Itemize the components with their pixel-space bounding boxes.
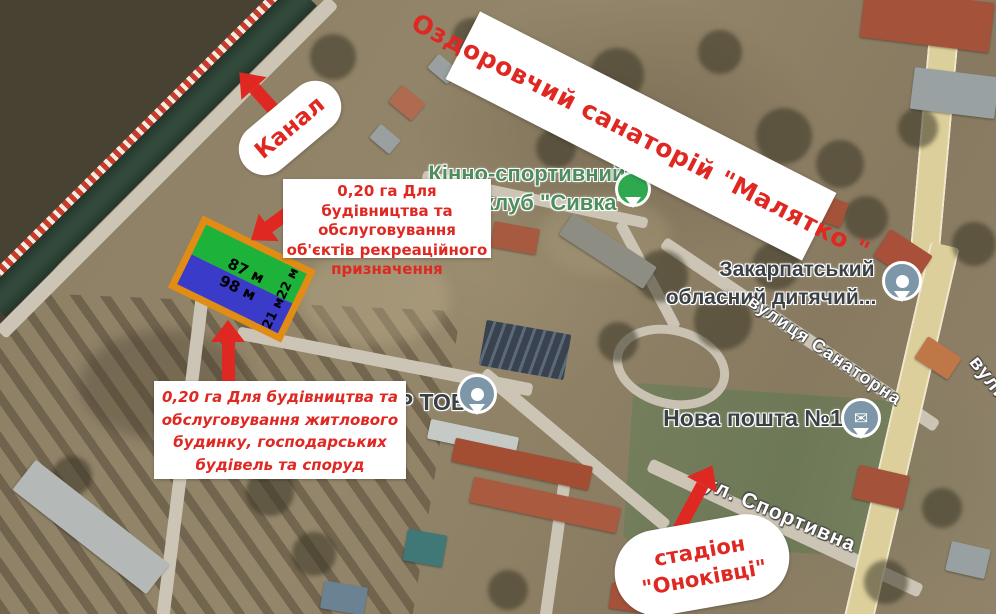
mail-icon: ✉ (854, 410, 868, 427)
building-house (388, 85, 425, 121)
building-teal-roof (403, 529, 448, 567)
tree (816, 140, 864, 188)
pin-dot (896, 275, 909, 288)
building-house (369, 124, 400, 155)
residential-arrow (211, 320, 245, 382)
zakarpatskyi-pin[interactable] (882, 261, 922, 301)
building-shed-red (469, 477, 621, 534)
tree (898, 108, 938, 148)
tree (488, 570, 528, 610)
nova-poshta-pin[interactable]: ✉ (841, 398, 881, 438)
er-tov-pin[interactable] (457, 374, 497, 414)
residential-note-box: 0,20 га Для будівництва та обслуговуванн… (154, 381, 406, 479)
arrow-head (211, 320, 245, 342)
tree (698, 30, 742, 74)
poi-nova-poshta[interactable]: Нова пошта №1 (653, 405, 853, 432)
poi-zakarpatskyi-line1[interactable]: Закарпатський (697, 258, 897, 282)
building-red-roof (859, 0, 994, 53)
tree (922, 488, 962, 528)
tree (864, 560, 908, 604)
tree (292, 532, 336, 576)
satellite-map-viewport[interactable]: ✉ Кінно-спортивний клуб "Сивка" Закарпат… (0, 0, 996, 614)
arrow-shaft (222, 342, 235, 382)
building-gray-roof (945, 541, 991, 579)
recreation-note-box: 0,20 га Для будівництва та обслуговуванн… (283, 179, 491, 258)
tree (952, 222, 996, 266)
pin-dot (471, 388, 484, 401)
tree (310, 34, 356, 80)
street-label-partial: вулиця (964, 352, 996, 427)
building-club (490, 221, 540, 255)
tree (598, 322, 638, 362)
